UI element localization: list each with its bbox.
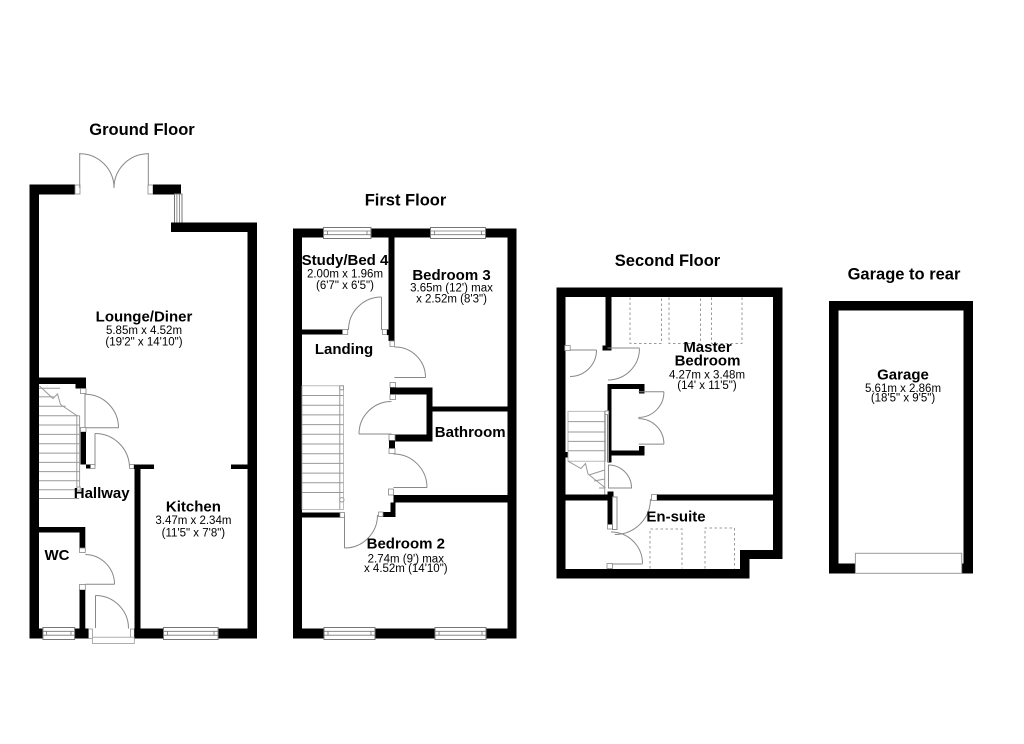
svg-text:Kitchen: Kitchen: [166, 499, 221, 516]
svg-text:Bedroom: Bedroom: [675, 353, 741, 370]
svg-text:Lounge/Diner: Lounge/Diner: [96, 309, 193, 326]
svg-text:(6'7" x 6'5"): (6'7" x 6'5"): [316, 280, 374, 292]
svg-text:(14' x 11'5"): (14' x 11'5"): [677, 380, 737, 392]
svg-text:Hallway: Hallway: [74, 485, 131, 502]
svg-text:Garage to rear: Garage to rear: [848, 266, 961, 284]
svg-text:x 4.52m (14'10"): x 4.52m (14'10"): [364, 563, 448, 575]
svg-text:Landing: Landing: [315, 341, 373, 358]
svg-text:Bedroom 3: Bedroom 3: [412, 267, 490, 284]
svg-text:3.47m x 2.34m: 3.47m x 2.34m: [155, 515, 231, 527]
svg-text:Ground Floor: Ground Floor: [89, 121, 195, 139]
svg-text:(19'2" x 14'10"): (19'2" x 14'10"): [105, 337, 182, 349]
svg-text:Second Floor: Second Floor: [615, 252, 721, 270]
svg-text:(18'5" x 9'5"): (18'5" x 9'5"): [871, 393, 936, 405]
svg-text:Bathroom: Bathroom: [435, 424, 506, 441]
svg-text:5.85m x 4.52m: 5.85m x 4.52m: [106, 325, 182, 337]
svg-text:Study/Bed 4: Study/Bed 4: [302, 252, 389, 269]
svg-text:Garage: Garage: [877, 366, 929, 383]
svg-text:Bedroom 2: Bedroom 2: [367, 536, 445, 553]
svg-text:(11'5" x 7'8"): (11'5" x 7'8"): [162, 528, 226, 540]
svg-text:First Floor: First Floor: [365, 192, 447, 210]
svg-text:En-suite: En-suite: [646, 509, 705, 526]
svg-text:2.00m x 1.96m: 2.00m x 1.96m: [307, 269, 383, 281]
svg-text:WC: WC: [45, 547, 70, 564]
svg-text:x 2.52m (8'3"): x 2.52m (8'3"): [416, 294, 487, 306]
